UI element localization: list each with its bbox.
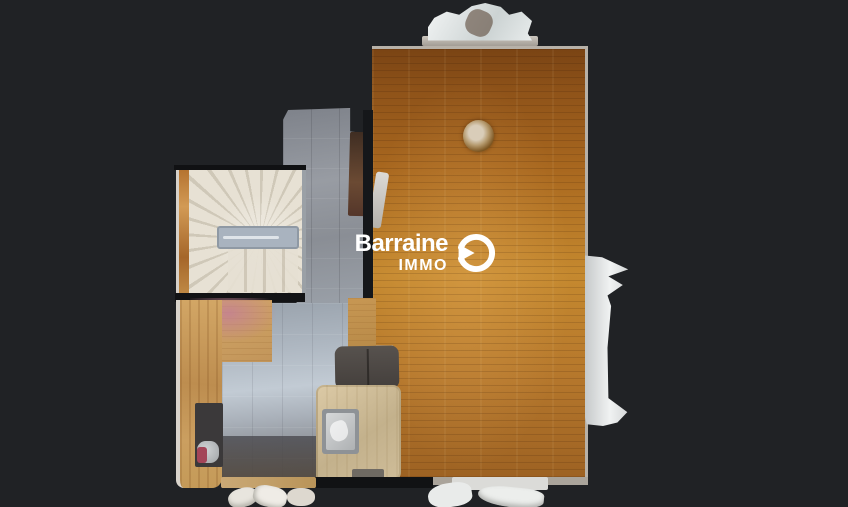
stair-wood-stringer (179, 169, 189, 295)
brand-division: IMMO (352, 258, 448, 274)
ceiling-light (463, 120, 494, 152)
stove-red-part (197, 447, 207, 463)
doorway-white-objects (225, 486, 320, 507)
right-window-curtain (585, 252, 630, 426)
white-object (251, 483, 289, 507)
stairs-top-wall (174, 165, 306, 170)
wood-floor-patch (348, 298, 376, 350)
play-circle-icon (454, 231, 498, 275)
stair-railing (217, 226, 299, 249)
stove (195, 403, 223, 467)
kitchen-bottom-wall (315, 477, 433, 488)
brand-text: Barraine IMMO (352, 232, 448, 274)
brand-name: Barraine (352, 232, 448, 256)
white-object (287, 488, 315, 506)
kitchen-sink (322, 409, 359, 454)
floorplan-view[interactable]: Barraine IMMO (0, 0, 848, 507)
stair-treads-lower (228, 248, 298, 292)
spiral-staircase (176, 169, 306, 295)
brand-watermark: Barraine IMMO (352, 231, 498, 275)
sofa (335, 345, 400, 389)
kitchen-island (316, 385, 401, 482)
